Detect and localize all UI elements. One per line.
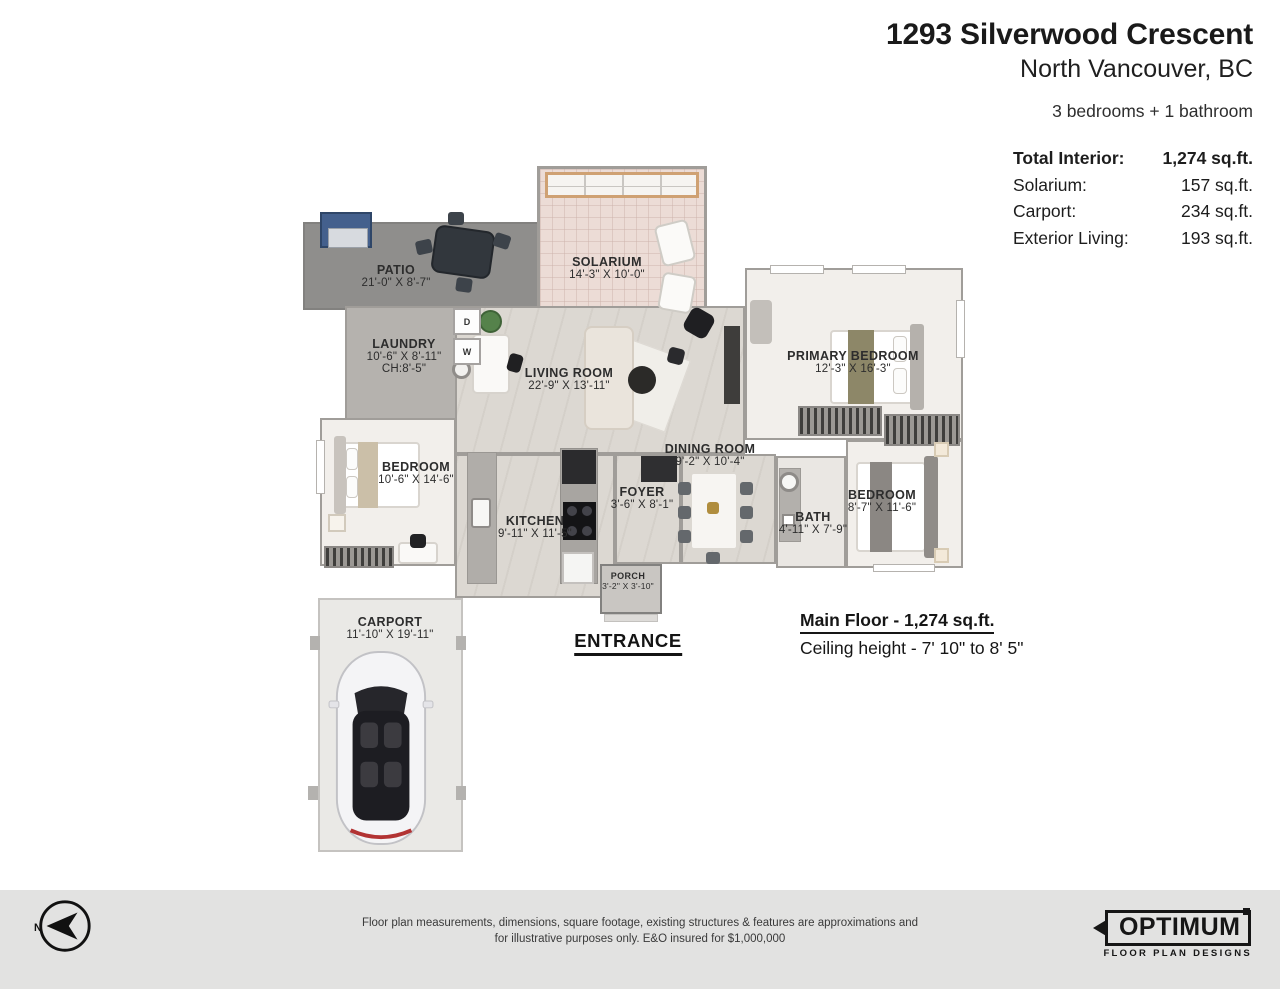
patio-chair [448,212,464,225]
svg-text:N: N [34,922,42,934]
dining-chair [678,530,691,543]
pencil-icon [1093,919,1108,937]
washer-dryer-stack: D W [453,308,481,368]
house-plant [479,310,502,333]
optimum-logo: OPTIMUM FLOOR PLAN DESIGNS [1103,910,1252,959]
kitchen-sink [471,498,491,528]
carport-post [308,786,318,800]
stat-label: Solarium: [1013,172,1087,199]
entrance-label: ENTRANCE [574,630,682,656]
fireplace [724,326,740,404]
bbq-grill [320,212,372,248]
dining-chair [706,552,720,564]
page-title: 1293 Silverwood Crescent [886,18,1253,52]
porch-step [604,614,658,622]
window [873,564,935,572]
solarium-glass-wall [545,172,699,198]
pillow [346,448,358,470]
window [770,265,824,274]
page-subtitle: North Vancouver, BC [886,55,1253,84]
nightstand-lamp [934,442,949,457]
dryer-icon: D [453,308,481,335]
logo-tagline: FLOOR PLAN DESIGNS [1103,948,1252,959]
nightstand-lamp [934,548,949,563]
coffee-station [562,450,596,484]
bed-headboard [334,436,346,514]
label-kitchen: KITCHEN 9'-11" X 11'-5" [498,514,572,540]
nightstand [328,514,346,532]
dining-chair [678,482,691,495]
stat-label: Exterior Living: [1013,225,1129,252]
logo-name: OPTIMUM [1119,913,1241,941]
north-arrow-icon: N [32,896,94,958]
soaker-tub [779,472,799,492]
carport-post [456,636,466,650]
ceiling-height: Ceiling height - 7' 10" to 8' 5" [800,638,1023,659]
desk-chair [410,534,426,548]
label-primary-bedroom: PRIMARY BEDROOM 12'-3" X 16'-3" [787,349,919,375]
stat-value: 157 sq.ft. [1181,172,1253,199]
area-stats-table: Total Interior: 1,274 sq.ft. Solarium: 1… [1013,145,1253,251]
washer-icon: W [453,338,481,365]
carport-post [456,786,466,800]
label-bedroom-left: BEDROOM 10'-6" X 14'-6" [378,460,454,486]
bed-bath-summary: 3 bedrooms + 1 bathroom [886,101,1253,122]
label-dining: DINING ROOM 9'-2" X 10'-4" [665,442,756,468]
label-bath: BATH 4'-11" X 7'-9" [779,510,847,536]
car-top-view [327,650,435,846]
stat-row-solarium: Solarium: 157 sq.ft. [1013,172,1253,199]
patio-chair [455,277,473,293]
disclaimer-line-2: for illustrative purposes only. E&O insu… [362,931,918,947]
stat-row-exterior: Exterior Living: 193 sq.ft. [1013,225,1253,252]
closet-wardrobe [324,546,394,568]
logo-box: OPTIMUM [1105,910,1251,946]
bench [750,300,772,344]
dining-chair [678,506,691,519]
disclaimer-text: Floor plan measurements, dimensions, squ… [362,915,918,947]
window [852,265,906,274]
stat-value: 1,274 sq.ft. [1163,145,1253,172]
table-centerpiece [707,502,719,514]
label-solarium: SOLARIUM 14'-3" X 10'-0" [569,255,645,281]
stat-value: 193 sq.ft. [1181,225,1253,252]
label-living: LIVING ROOM 22'-9" X 13'-11" [525,366,613,392]
bed-headboard [924,456,938,558]
label-bedroom-right: BEDROOM 8'-7" X 11'-6" [848,488,916,514]
tape-measure-icon [1194,910,1246,913]
disclaimer-line-1: Floor plan measurements, dimensions, squ… [362,915,918,931]
carport-post [310,636,320,650]
main-floor-info: Main Floor - 1,274 sq.ft. Ceiling height… [800,610,1023,659]
header: 1293 Silverwood Crescent North Vancouver… [886,18,1253,251]
label-patio: PATIO 21'-0" X 8'-7" [361,263,430,289]
label-porch: PORCH 3'-2" X 3'-10" [602,571,654,591]
dining-chair [740,482,753,495]
coffee-table [628,366,656,394]
stat-label: Carport: [1013,198,1076,225]
footer-bar: N Floor plan measurements, dimensions, s… [0,890,1280,989]
closet-wardrobe [798,406,882,436]
dining-chair [740,530,753,543]
label-foyer: FOYER 3'-6" X 8'-1" [611,485,673,511]
dining-chair [740,506,753,519]
stat-label: Total Interior: [1013,145,1124,172]
stat-row-carport: Carport: 234 sq.ft. [1013,198,1253,225]
floor-plan-page: 1293 Silverwood Crescent North Vancouver… [0,0,1280,989]
refrigerator [562,552,594,584]
stat-row-total: Total Interior: 1,274 sq.ft. [1013,145,1253,172]
window [956,300,965,358]
pillow [346,476,358,498]
window [316,440,325,494]
main-floor-title: Main Floor - 1,274 sq.ft. [800,610,994,634]
bed-runner [358,442,378,508]
patio-table [430,224,496,280]
label-laundry: LAUNDRY 10'-6" X 8'-11" CH:8'-5" [367,337,442,375]
lounge-chair [657,271,697,314]
label-carport: CARPORT 11'-10" X 19'-11" [346,615,433,641]
stat-value: 234 sq.ft. [1181,198,1253,225]
